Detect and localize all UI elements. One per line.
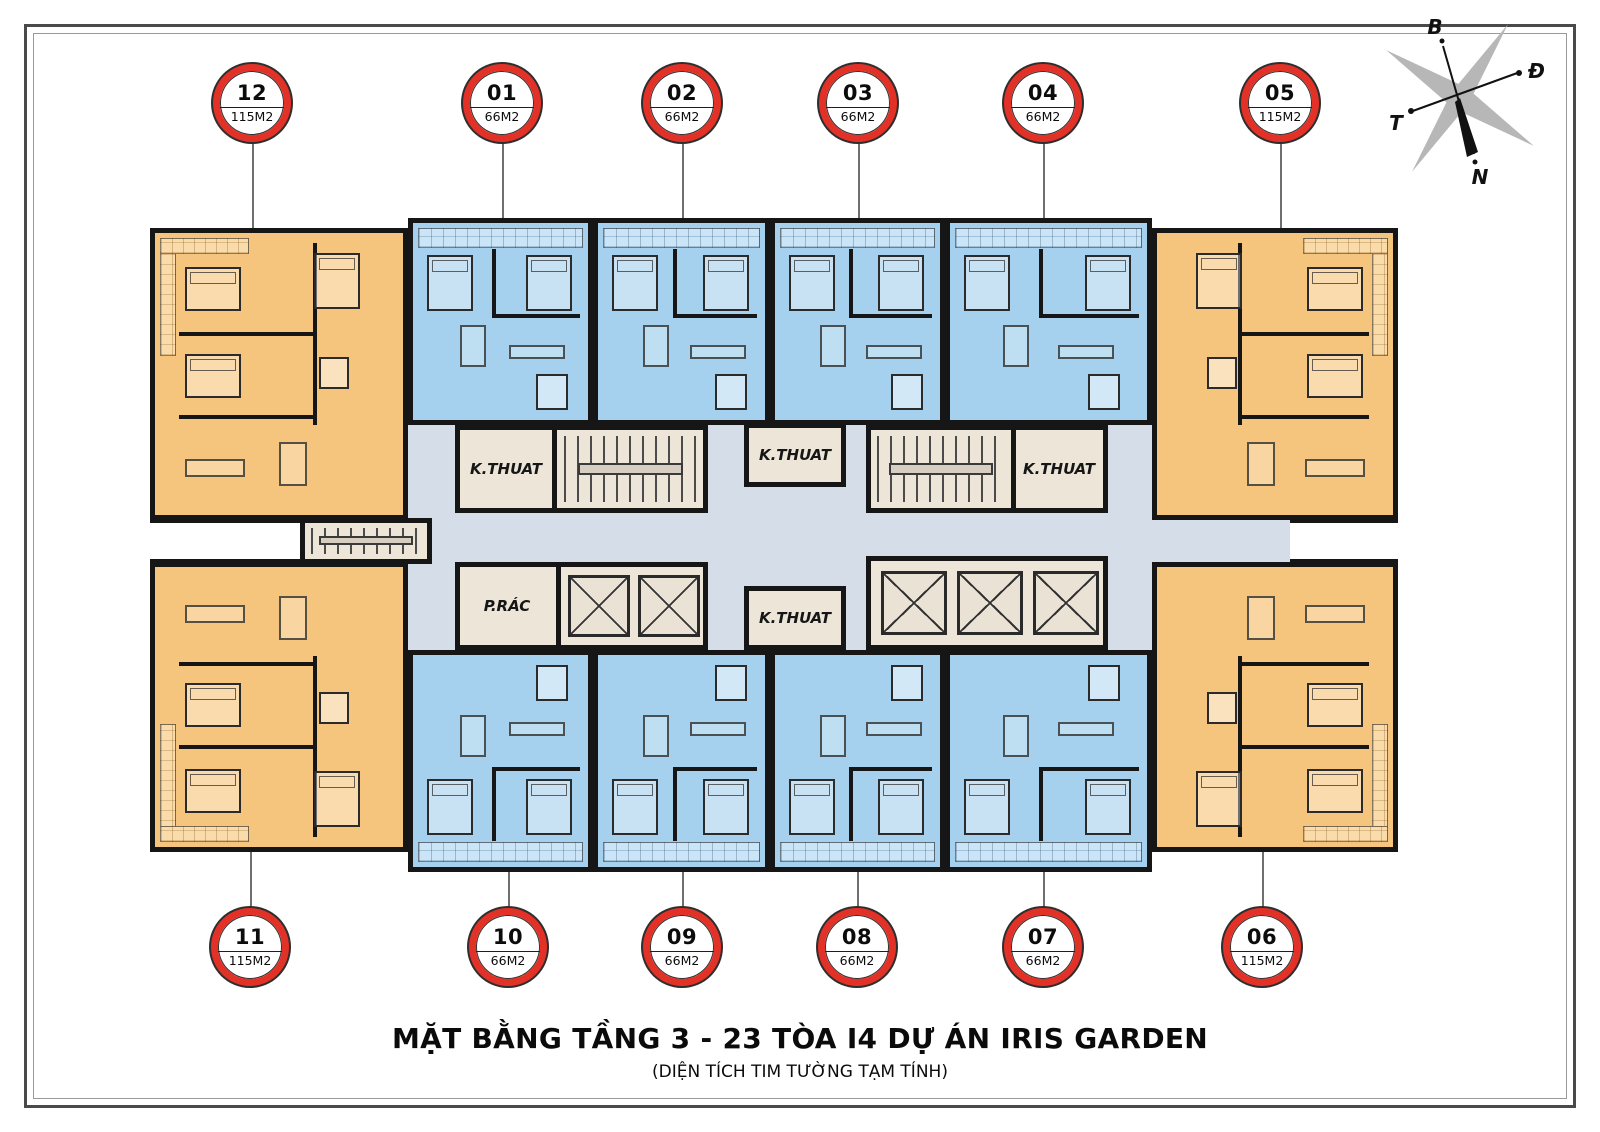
badge-face: 0966M2 [650, 927, 714, 968]
elevator-shaft [568, 575, 630, 637]
badge-face: 1066M2 [476, 927, 540, 968]
unit-number: 07 [1028, 927, 1058, 948]
plan-subtitle: (DIỆN TÍCH TIM TƯỜNG TẠM TÍNH) [0, 1062, 1600, 1082]
balcony [160, 724, 176, 842]
unit-badge-12: 12115M2 [213, 64, 291, 142]
core-room-elevator-core [866, 556, 1108, 650]
unit-area: 66M2 [1011, 107, 1075, 124]
room-label: K.THUAT [749, 608, 841, 628]
unit-area: 115M2 [218, 951, 282, 968]
partition-wall [1039, 771, 1043, 841]
badge-connector-line [1280, 135, 1282, 228]
unit-area: 66M2 [825, 951, 889, 968]
dining-table [820, 325, 846, 367]
elevator-shaft [1033, 571, 1099, 635]
room-label: K.THUAT [462, 459, 550, 479]
unit-number: 01 [487, 83, 517, 104]
badge-face: 0466M2 [1011, 83, 1075, 124]
badge-connector-line [502, 135, 504, 218]
bathroom [715, 374, 747, 410]
unit-area: 66M2 [476, 951, 540, 968]
bed [1085, 255, 1131, 311]
unit-number: 05 [1265, 83, 1295, 104]
badge-face: 0166M2 [470, 83, 534, 124]
core-room-k-thuat-top-right: K.THUAT [866, 425, 1108, 513]
unit-area: 66M2 [470, 107, 534, 124]
sofa [509, 345, 565, 359]
partition-wall [1039, 249, 1043, 314]
balcony [418, 842, 583, 862]
balcony [603, 842, 760, 862]
partition-wall [849, 771, 853, 841]
bed [1196, 771, 1242, 827]
bed [1307, 267, 1363, 311]
sofa [185, 459, 245, 477]
sofa [1058, 345, 1114, 359]
badge-connector-line [252, 135, 254, 228]
balcony [1303, 238, 1388, 254]
sofa [690, 345, 746, 359]
bed [789, 779, 835, 835]
dining-table [1003, 325, 1029, 367]
bed [314, 253, 360, 309]
bed [1307, 683, 1363, 727]
unit-number: 04 [1028, 83, 1058, 104]
unit-area: 66M2 [650, 951, 714, 968]
balcony [780, 842, 935, 862]
badge-face: 0866M2 [825, 927, 889, 968]
dining-table [279, 442, 307, 486]
unit-05-floorplan [1152, 228, 1398, 520]
balcony [160, 238, 249, 254]
bathroom [319, 357, 349, 389]
unit-area: 66M2 [1011, 951, 1075, 968]
bathroom [1207, 357, 1237, 389]
room-label: P.RÁC [462, 596, 552, 616]
unit-badge-11: 11115M2 [211, 908, 289, 986]
balcony [955, 228, 1142, 248]
room-label: K.THUAT [749, 445, 841, 465]
bathroom [536, 665, 568, 701]
bed [964, 779, 1010, 835]
balcony [955, 842, 1142, 862]
room-divider-wall [1011, 430, 1016, 508]
partition-wall [849, 314, 932, 318]
bed [427, 255, 473, 311]
badge-face: 0266M2 [650, 83, 714, 124]
balcony [160, 238, 176, 356]
partition-wall [1242, 332, 1369, 336]
unit-area: 115M2 [1230, 951, 1294, 968]
bed [185, 769, 241, 813]
bed [185, 683, 241, 727]
elevator-shaft [881, 571, 947, 635]
partition-wall [1242, 662, 1369, 666]
bathroom [891, 665, 923, 701]
unit-badge-09: 0966M2 [643, 908, 721, 986]
partition-wall [179, 332, 313, 336]
bed [703, 255, 749, 311]
sofa [509, 722, 565, 736]
unit-number: 06 [1247, 927, 1277, 948]
balcony [1303, 826, 1388, 842]
room-label: K.THUAT [1017, 459, 1101, 479]
core-room-k-thuat-bottom-center: K.THUAT [744, 586, 846, 650]
dining-table [1247, 596, 1275, 640]
bed [964, 255, 1010, 311]
balcony [1372, 238, 1388, 356]
stair-rail [319, 536, 413, 545]
badge-face: 11115M2 [218, 927, 282, 968]
partition-wall [179, 415, 313, 419]
room-divider-wall [556, 567, 561, 645]
partition-wall [1242, 415, 1369, 419]
partition-wall [673, 771, 677, 841]
title-block: MẶT BẰNG TẦNG 3 - 23 TÒA I4 DỰ ÁN IRIS G… [0, 1022, 1600, 1082]
partition-wall [849, 249, 853, 314]
compass-east-dot [1516, 70, 1522, 76]
bed [427, 779, 473, 835]
bed [1085, 779, 1131, 835]
partition-wall [849, 767, 932, 771]
dining-table [460, 715, 486, 757]
stair-rail [578, 463, 683, 475]
partition-wall [1039, 767, 1139, 771]
bed [185, 354, 241, 398]
partition-wall [673, 249, 677, 314]
unit-area: 115M2 [220, 107, 284, 124]
dining-table [820, 715, 846, 757]
sofa [866, 345, 922, 359]
unit-number: 10 [493, 927, 523, 948]
unit-10-floorplan [408, 650, 593, 872]
unit-02-floorplan [593, 218, 770, 425]
bed [789, 255, 835, 311]
unit-11-floorplan [150, 562, 408, 852]
compass-south-label: N [1472, 165, 1489, 189]
floor-plan-page: K.THUATK.THUATK.THUATK.THUATP.RÁC12115M2… [0, 0, 1600, 1132]
compass-south-dot [1473, 160, 1478, 165]
dining-table [643, 715, 669, 757]
core-room-wing-staircase [300, 518, 432, 564]
sofa [1058, 722, 1114, 736]
compass-west-dot [1408, 108, 1414, 114]
unit-badge-05: 05115M2 [1241, 64, 1319, 142]
elevator-shaft [957, 571, 1023, 635]
bathroom [715, 665, 747, 701]
unit-number: 08 [842, 927, 872, 948]
unit-area: 115M2 [1248, 107, 1312, 124]
partition-wall [1039, 314, 1139, 318]
left-wing-gap [150, 518, 302, 564]
unit-badge-08: 0866M2 [818, 908, 896, 986]
unit-08-floorplan [770, 650, 945, 872]
partition-wall [492, 771, 496, 841]
compass-north-dot [1440, 39, 1445, 44]
bed [612, 779, 658, 835]
sofa [690, 722, 746, 736]
badge-face: 06115M2 [1230, 927, 1294, 968]
balcony [603, 228, 760, 248]
unit-badge-07: 0766M2 [1004, 908, 1082, 986]
unit-badge-02: 0266M2 [643, 64, 721, 142]
unit-number: 12 [237, 83, 267, 104]
right-wing-gap [1290, 518, 1398, 564]
elevator-shaft [638, 575, 700, 637]
compass-north-label: B [1427, 15, 1442, 39]
corridor-right-extension [1152, 520, 1292, 562]
dining-table [1247, 442, 1275, 486]
badge-connector-line [858, 135, 860, 218]
unit-12-floorplan [150, 228, 408, 520]
unit-number: 02 [667, 83, 697, 104]
core-room-p-rac-bottom-left: P.RÁC [455, 562, 708, 650]
balcony [418, 228, 583, 248]
bed [878, 255, 924, 311]
badge-face: 05115M2 [1248, 83, 1312, 124]
partition-wall [673, 314, 757, 318]
partition-wall [179, 662, 313, 666]
bed [1196, 253, 1242, 309]
badge-face: 12115M2 [220, 83, 284, 124]
unit-badge-03: 0366M2 [819, 64, 897, 142]
bed [526, 779, 572, 835]
bathroom [891, 374, 923, 410]
dining-table [643, 325, 669, 367]
compass-rose: B Đ T N [1348, 14, 1560, 200]
unit-number: 11 [235, 927, 265, 948]
bed [1307, 769, 1363, 813]
bed [612, 255, 658, 311]
badge-face: 0766M2 [1011, 927, 1075, 968]
partition-wall [492, 249, 496, 314]
core-room-k-thuat-top-center: K.THUAT [744, 423, 846, 487]
bed [1307, 354, 1363, 398]
unit-01-floorplan [408, 218, 593, 425]
compass-west-label: T [1389, 111, 1404, 135]
partition-wall [1242, 745, 1369, 749]
unit-07-floorplan [945, 650, 1152, 872]
partition-wall [492, 314, 580, 318]
balcony [160, 826, 249, 842]
dining-table [460, 325, 486, 367]
partition-wall [179, 745, 313, 749]
badge-connector-line [250, 852, 252, 915]
compass-star [1348, 14, 1560, 200]
badge-connector-line [1262, 852, 1264, 915]
badge-connector-line [682, 135, 684, 218]
unit-04-floorplan [945, 218, 1152, 425]
bed [314, 771, 360, 827]
unit-area: 66M2 [826, 107, 890, 124]
partition-wall [673, 767, 757, 771]
bathroom [536, 374, 568, 410]
unit-area: 66M2 [650, 107, 714, 124]
sofa [866, 722, 922, 736]
unit-badge-01: 0166M2 [463, 64, 541, 142]
unit-badge-06: 06115M2 [1223, 908, 1301, 986]
unit-03-floorplan [770, 218, 945, 425]
badge-face: 0366M2 [826, 83, 890, 124]
partition-wall [492, 767, 580, 771]
badge-connector-line [1043, 135, 1045, 218]
sofa [1305, 605, 1365, 623]
balcony [1372, 724, 1388, 842]
sofa [185, 605, 245, 623]
unit-badge-10: 1066M2 [469, 908, 547, 986]
bathroom [1088, 665, 1120, 701]
dining-table [279, 596, 307, 640]
unit-06-floorplan [1152, 562, 1398, 852]
sofa [1305, 459, 1365, 477]
unit-badge-04: 0466M2 [1004, 64, 1082, 142]
bed [185, 267, 241, 311]
unit-number: 09 [667, 927, 697, 948]
bathroom [1207, 692, 1237, 724]
compass-east-label: Đ [1527, 59, 1545, 83]
bed [703, 779, 749, 835]
bathroom [319, 692, 349, 724]
room-divider-wall [552, 430, 557, 508]
unit-09-floorplan [593, 650, 770, 872]
bathroom [1088, 374, 1120, 410]
balcony [780, 228, 935, 248]
unit-number: 03 [843, 83, 873, 104]
stair-rail [889, 463, 993, 475]
dining-table [1003, 715, 1029, 757]
bed [526, 255, 572, 311]
bed [878, 779, 924, 835]
core-room-k-thuat-top-left: K.THUAT [455, 425, 708, 513]
plan-title: MẶT BẰNG TẦNG 3 - 23 TÒA I4 DỰ ÁN IRIS G… [0, 1022, 1600, 1055]
